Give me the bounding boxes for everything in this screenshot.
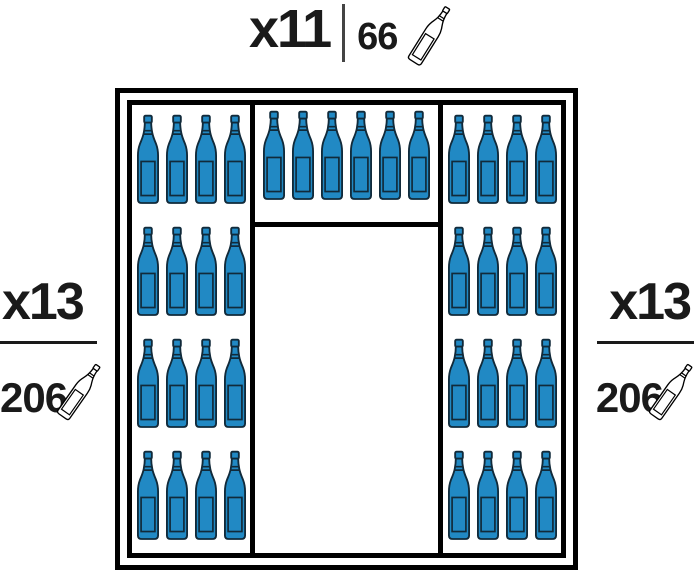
left-shelf-section [132,105,250,553]
wine-bottle-icon [445,338,473,432]
wine-bottle-icon [474,338,502,432]
middle-top-shelf [255,105,438,227]
wine-bottle-icon [474,450,502,544]
wine-bottle-icon [163,226,191,320]
bottle-row [443,441,561,553]
wine-bottle-icon [134,226,162,320]
wine-bottle-icon [532,114,560,208]
bottle-row [132,217,250,329]
wine-bottle-icon [134,450,162,544]
wine-bottle-icon [192,114,220,208]
left-count-row: 206 [0,370,90,425]
left-divider-line [0,341,97,344]
top-multiplier: x11 [249,2,330,56]
bottle-row [443,329,561,441]
empty-bottle-icon [403,1,458,70]
wine-bottle-icon [163,450,191,544]
wine-bottle-icon [405,110,433,204]
wine-bottle-icon [318,110,346,204]
wine-bottle-icon [445,450,473,544]
wine-bottle-icon [221,450,249,544]
wine-bottle-icon [192,338,220,432]
wine-bottle-icon [376,110,404,204]
bottle-row [132,441,250,553]
wine-bottle-icon [347,110,375,204]
wine-bottle-icon [289,110,317,204]
wine-bottle-icon [532,450,560,544]
wine-bottle-icon [192,226,220,320]
right-divider-line [597,341,694,344]
cabinet-outer-frame [115,88,578,570]
right-count-row: 206 [596,370,694,425]
wine-bottle-icon [221,114,249,208]
top-bottle-count: 66 [357,18,397,56]
wine-bottle-icon [474,226,502,320]
wine-bottle-icon [532,226,560,320]
wine-bottle-icon [503,338,531,432]
bottle-row [255,105,438,222]
wine-bottle-icon [134,338,162,432]
wine-bottle-icon [134,114,162,208]
wine-bottle-icon [192,450,220,544]
wine-bottle-icon [260,110,288,204]
right-shelf-section [443,105,561,553]
wine-bottle-icon [445,114,473,208]
left-multiplier: x13 [2,276,83,328]
wine-cellar-diagram: x11 66 x13 206 x13 206 [0,0,694,572]
bottle-row [443,217,561,329]
wine-bottle-icon [163,338,191,432]
wine-bottle-icon [503,450,531,544]
wine-bottle-icon [503,226,531,320]
bottle-row [132,105,250,217]
wine-bottle-icon [221,338,249,432]
wine-bottle-icon [445,226,473,320]
wine-bottle-icon [163,114,191,208]
wine-bottle-icon [503,114,531,208]
middle-shelf-section [255,105,438,553]
right-multiplier: x13 [609,276,690,328]
left-capacity-label: x13 206 [0,276,100,425]
bottle-row [443,105,561,217]
right-capacity-label: x13 206 [594,276,694,425]
wine-bottle-icon [474,114,502,208]
wine-bottle-icon [221,226,249,320]
bottle-row [132,329,250,441]
cabinet-inner-frame [127,100,566,558]
wine-bottle-icon [532,338,560,432]
empty-compartment [255,227,438,553]
top-divider-line [342,4,345,62]
top-capacity-label: x11 66 [249,2,441,70]
